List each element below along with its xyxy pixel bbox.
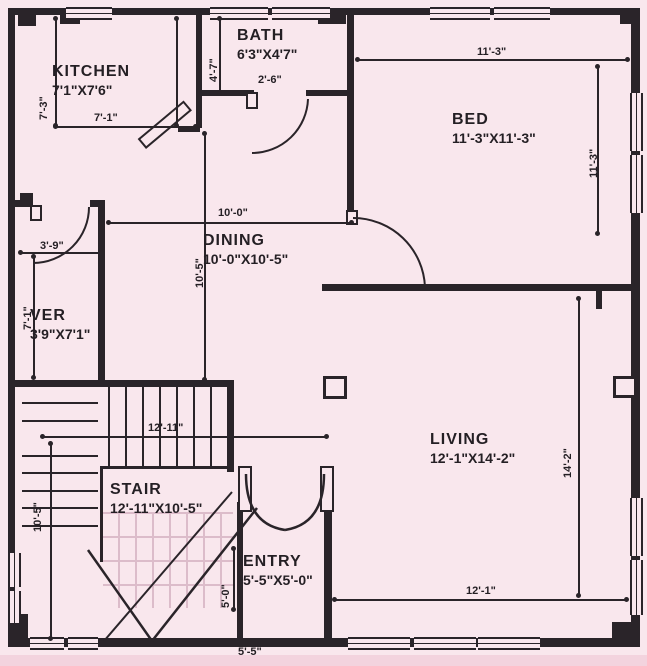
dimension-text: 2'-6" [258,74,282,86]
dimension-text: 7'-1" [94,112,118,124]
dimension-text: 10'-0" [218,207,248,219]
dimension-text: 5'-0" [220,584,232,608]
dimension-text: 11'-3" [588,149,600,178]
ver-door-arc [33,207,89,263]
room-size: 12'-1"X14'-2" [430,450,515,468]
dimension-text: 12'-11" [148,422,183,434]
room-name: STAIR [110,480,202,500]
dim-line-bed-width [357,59,628,61]
room-size: 11'-3"X11'-3" [452,130,536,148]
room-label-bed: BED11'-3"X11'-3" [452,110,536,148]
dimension-text: 4'-7" [208,58,220,82]
room-name: KITCHEN [52,62,130,82]
stair-direction-line [152,508,257,641]
room-size: 5'-5"X5'-0" [243,572,313,590]
bed-door-arc [353,218,425,287]
room-size: 12'-11"X10'-5" [110,500,202,518]
dimension-text: 7'-1" [22,306,34,330]
room-label-living: LIVING12'-1"X14'-2" [430,430,515,468]
room-label-ver: VER3'9"X7'1" [30,306,90,344]
bath-door-arc [252,99,308,153]
room-name: BATH [237,26,297,46]
room-size: 7'1"X7'6" [52,82,130,100]
room-name: LIVING [430,430,515,450]
entry-door-arc-right [285,474,324,530]
room-size: 3'9"X7'1" [30,326,90,344]
room-label-kitchen: KITCHEN7'1"X7'6" [52,62,130,100]
room-name: VER [30,306,90,326]
dim-line-entry-height [233,548,235,610]
room-name: ENTRY [243,552,313,572]
dimension-text: 14'-2" [562,448,574,478]
dimension-text: 10'-5" [32,502,44,532]
dim-line-dining-width [108,222,352,224]
dimension-text: 3'-9" [40,240,64,252]
room-label-dining: DINING10'-0"X10'-5" [203,231,288,269]
room-label-entry: ENTRY5'-5"X5'-0" [243,552,313,590]
dimension-text: 10'-5" [194,258,206,288]
plan-curves [0,0,647,666]
dimension-text: 12'-1" [466,585,496,597]
dimension-text: 7'-3" [38,96,50,120]
dimension-text: 11'-3" [477,46,506,58]
room-size: 6'3"X4'7" [237,46,297,64]
room-size: 10'-0"X10'-5" [203,251,288,269]
bottom-strip [0,655,647,666]
dim-line-kitchen-inner [176,18,178,126]
dim-line-living-height [578,298,580,596]
dim-line-living-width [334,599,627,601]
room-name: BED [452,110,536,130]
room-label-bath: BATH6'3"X4'7" [237,26,297,64]
dim-line-stair-height [50,443,52,639]
room-name: DINING [203,231,288,251]
dim-line-bath-height [219,18,221,94]
dim-line-stair-width [42,436,327,438]
room-label-stair: STAIR12'-11"X10'-5" [110,480,202,518]
entry-door-arc-left [246,474,285,530]
floor-plan: KITCHEN7'1"X7'6"BATH6'3"X4'7"BED11'-3"X1… [0,0,647,666]
